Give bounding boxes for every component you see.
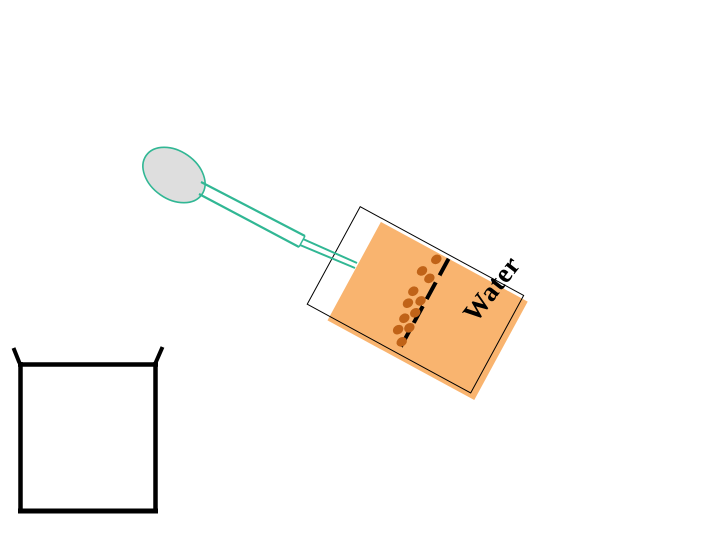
dropper-tube-line	[201, 182, 305, 236]
dropper-tube-line	[199, 194, 299, 247]
apparatus-overlay	[0, 0, 720, 540]
dropper-tube-line	[300, 245, 355, 268]
beaker-line	[156, 347, 163, 363]
dropper-tube-line	[303, 239, 357, 263]
beaker-line	[14, 348, 20, 363]
dropper-bulb	[132, 136, 215, 214]
diagram-canvas: Water	[0, 0, 720, 540]
